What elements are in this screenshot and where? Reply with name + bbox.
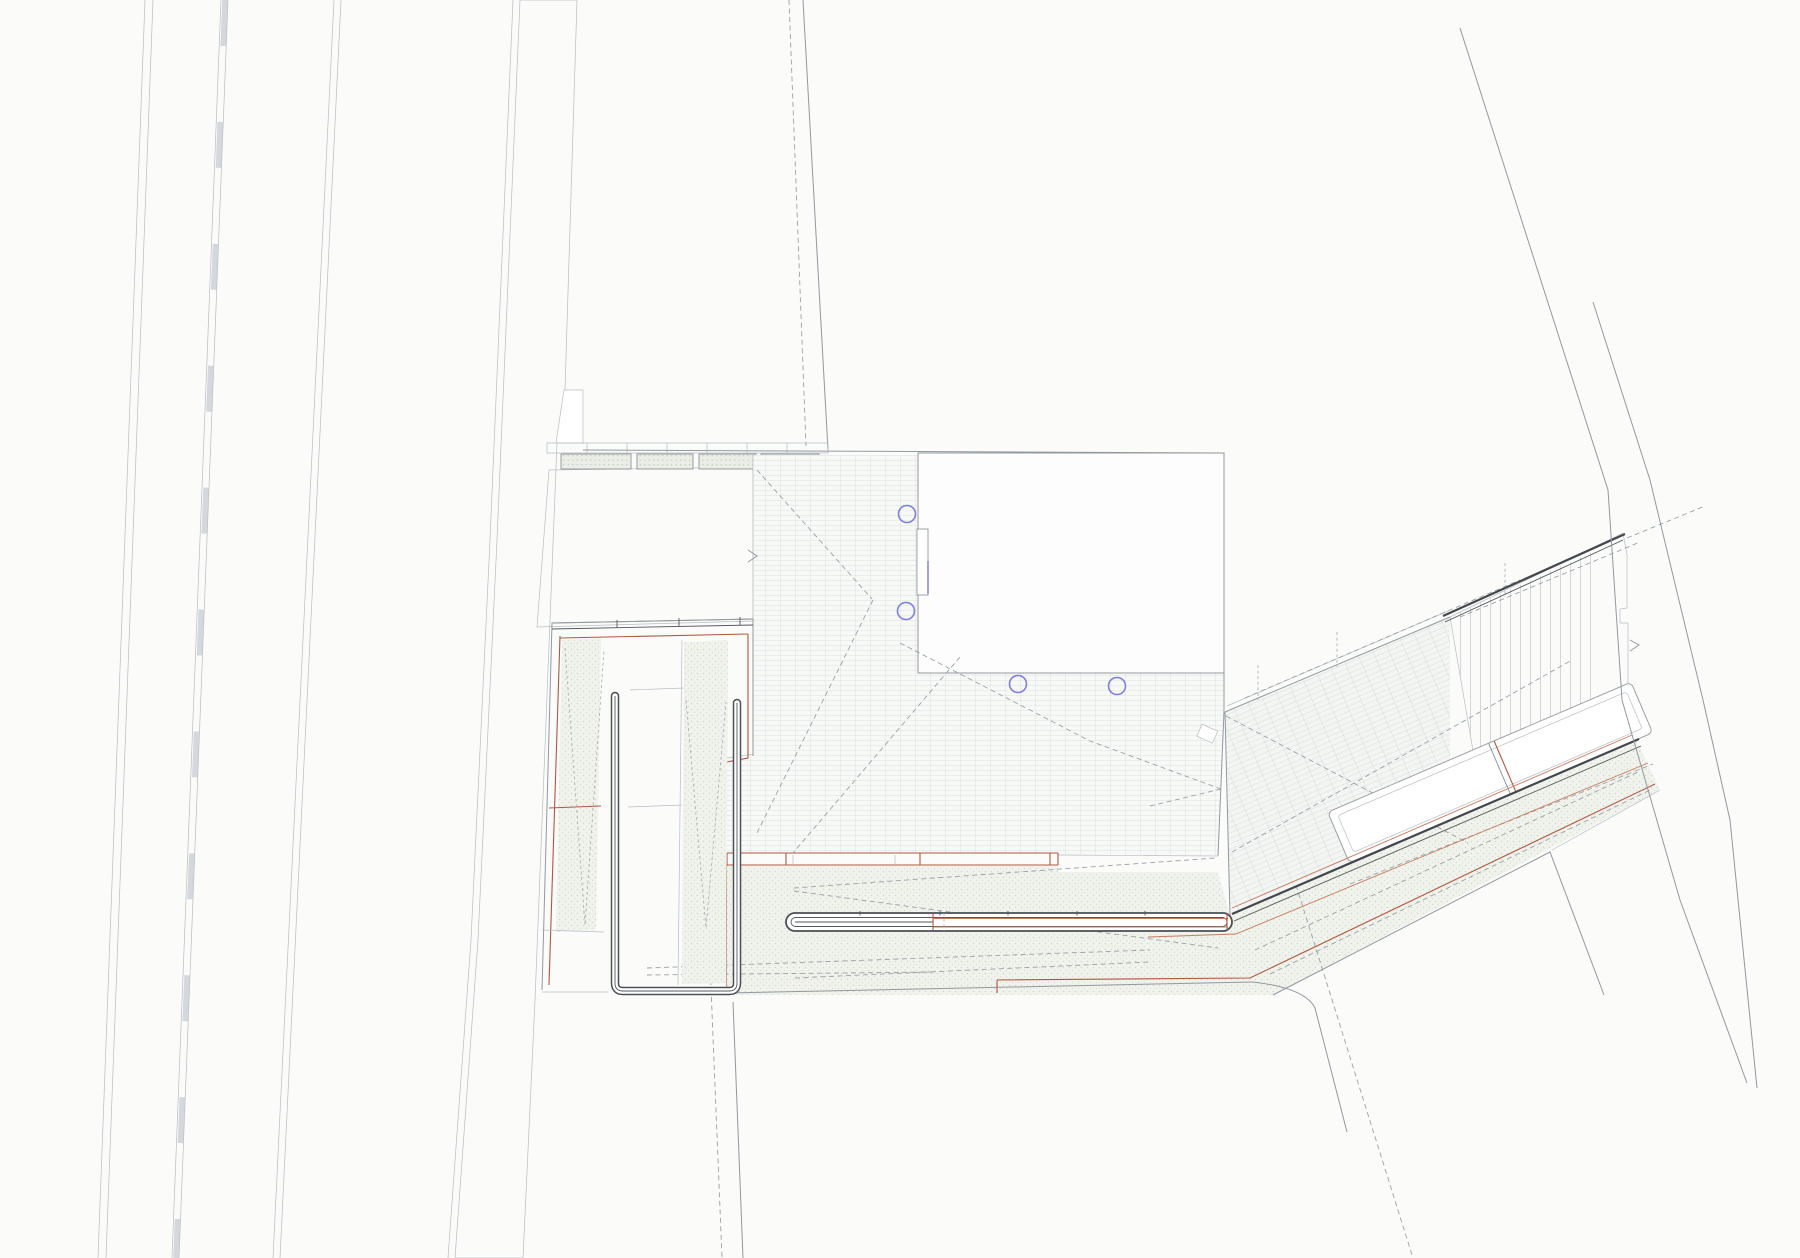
building-footprint	[918, 453, 1224, 673]
plan-layers	[0, 0, 1800, 1258]
site-plan-drawing	[0, 0, 1800, 1258]
site-plan-canvas	[0, 0, 1800, 1258]
rampbay-right-surface	[682, 640, 728, 984]
bench-3	[699, 454, 756, 469]
rampbay-left-surface	[556, 638, 601, 932]
bench-1	[561, 454, 631, 469]
bench-2	[637, 454, 693, 469]
building-door-leaf	[917, 529, 928, 595]
